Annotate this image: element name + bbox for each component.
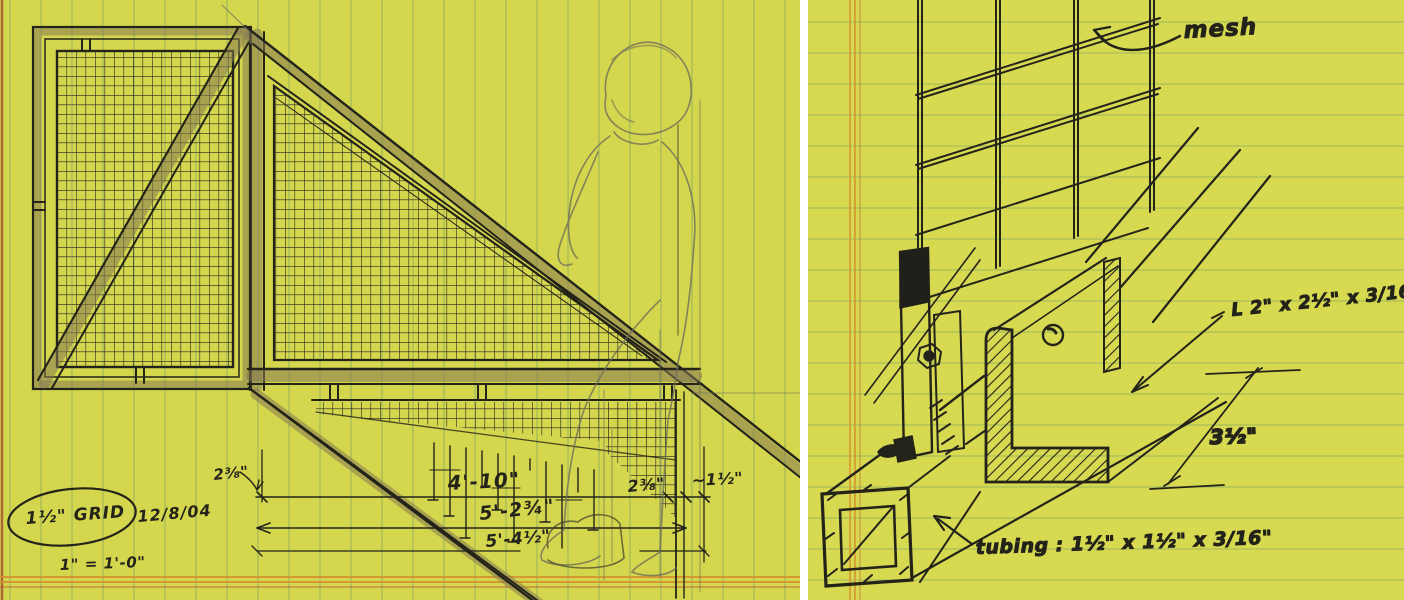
scanned-sketch-page: { "document": { "type": "hand-drawn stai… bbox=[0, 0, 1404, 600]
scale-note: 1" = 1'-0" bbox=[60, 553, 146, 574]
dim-run: 4'-10" bbox=[446, 467, 521, 495]
dim-offset-right: 2⅜" bbox=[627, 474, 666, 496]
square-mesh-panel bbox=[33, 27, 251, 389]
railing-post bbox=[250, 30, 264, 390]
elevation-sketch-panel: 2⅜" 4'-10" 2⅜" ~1½" 5'-2¾" 5'-4½" 1½" GR… bbox=[0, 0, 800, 600]
depth-dim-label: 3½" bbox=[1209, 423, 1258, 449]
detail-sketch-panel: mesh bbox=[808, 0, 1404, 600]
dim-offset-left: 2⅜" bbox=[213, 462, 250, 484]
mesh-label: mesh bbox=[1183, 14, 1258, 44]
dim-edge-gap: ~1½" bbox=[691, 468, 743, 490]
